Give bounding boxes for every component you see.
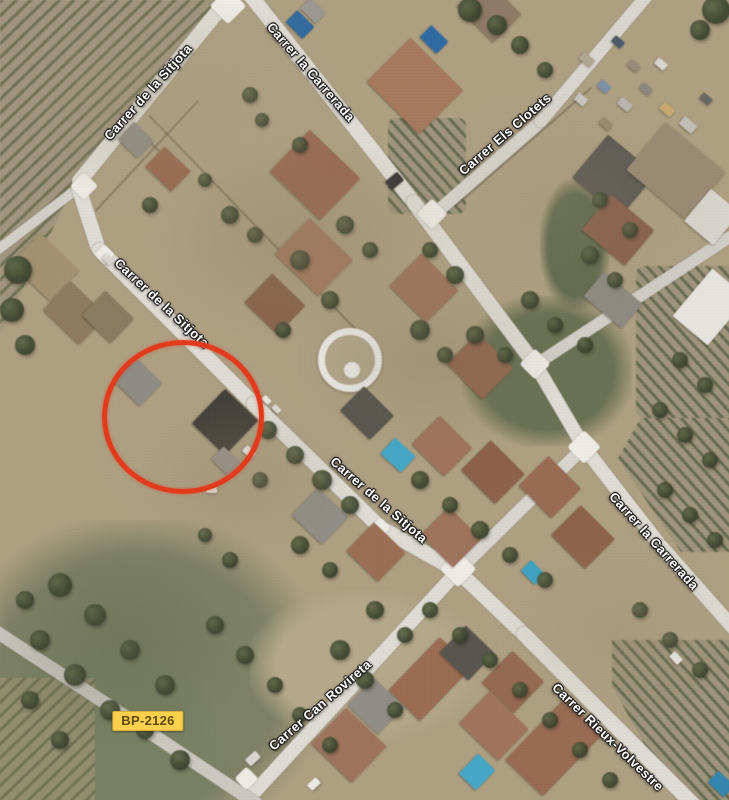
tree-canopy [702,452,718,468]
route-badge: BP-2126 [112,711,183,731]
tree-canopy [537,572,553,588]
tree-canopy [547,317,563,333]
building [627,59,641,73]
tree-canopy [206,616,224,634]
tree-canopy [672,352,688,368]
tree-canopy [275,322,291,338]
tree-canopy [290,250,310,270]
building [551,505,615,569]
tree-canopy [512,682,528,698]
tree-canopy [222,552,238,568]
building [597,79,612,94]
tree-canopy [592,192,608,208]
building [574,92,589,107]
building [617,97,634,113]
tree-canopy [16,591,34,609]
tree-canopy [677,427,693,443]
tree-canopy [142,197,158,213]
tree-canopy [697,377,713,393]
tree-canopy [362,242,378,258]
building [420,25,449,54]
tree-canopy [497,347,513,363]
tree-canopy [170,750,190,770]
tree-canopy [502,547,518,563]
tree-canopy [48,573,72,597]
tree-canopy [572,742,588,758]
tree-canopy [366,601,384,619]
tree-canopy [4,256,32,284]
water-tank-roof [344,362,360,378]
satellite-map[interactable]: Carrer de la SitjotaCarrer la CarreradaC… [0,0,729,800]
building [389,253,458,322]
tree-canopy [657,482,673,498]
tree-canopy [411,471,429,489]
route-badge-text: BP-2126 [121,713,174,728]
tree-canopy [30,630,50,650]
tree-canopy [442,497,458,513]
tree-canopy [581,246,599,264]
building [380,437,416,472]
tree-canopy [286,446,304,464]
tree-canopy [682,507,698,523]
tree-canopy [487,15,507,35]
tree-canopy [422,242,438,258]
tree-canopy [652,402,668,418]
building [659,102,676,118]
building [654,57,668,71]
tree-canopy [336,216,354,234]
tree-canopy [292,137,308,153]
building [679,116,698,134]
tree-canopy [410,320,430,340]
tree-canopy [452,627,468,643]
tree-canopy [577,337,593,353]
tree-canopy [622,222,638,238]
tree-canopy [21,691,39,709]
tree-canopy [322,737,338,753]
tree-canopy [466,326,484,344]
tree-canopy [236,646,254,664]
tree-canopy [84,604,106,626]
tree-canopy [341,496,359,514]
tree-canopy [51,731,69,749]
tree-canopy [322,562,338,578]
tree-canopy [422,602,438,618]
tree-canopy [252,472,268,488]
tree-canopy [521,291,539,309]
tree-canopy [387,702,403,718]
tree-canopy [321,291,339,309]
tree-canopy [291,536,309,554]
tree-canopy [632,602,648,618]
tree-canopy [312,470,332,490]
building [599,117,613,131]
building [639,82,653,96]
tree-canopy [221,206,239,224]
tree-canopy [15,335,35,355]
tree-canopy [0,298,24,322]
building [459,754,496,791]
vineyard-field [0,678,95,800]
tree-canopy [356,671,374,689]
tree-canopy [437,347,453,363]
tree-canopy [707,532,723,548]
tree-canopy [690,20,710,40]
tree-canopy [511,36,529,54]
tree-canopy [155,675,175,695]
tree-canopy [64,664,86,686]
tree-canopy [198,528,212,542]
building [699,92,713,106]
water-tank [318,328,382,392]
highlight-circle-marker [102,340,264,494]
road-segment [652,537,729,641]
building [340,386,394,440]
tree-canopy [292,707,308,723]
tree-canopy [242,87,258,103]
tree-canopy [702,0,729,24]
tree-canopy [247,227,263,243]
tree-canopy [542,712,558,728]
tree-canopy [537,62,553,78]
tree-canopy [607,272,623,288]
building [611,35,625,49]
tree-canopy [662,632,678,648]
tree-canopy [397,627,413,643]
tree-canopy [330,640,350,660]
tree-canopy [198,173,212,187]
tree-canopy [482,652,498,668]
tree-canopy [255,113,269,127]
tree-canopy [446,266,464,284]
tree-canopy [471,521,489,539]
tree-canopy [267,677,283,693]
tree-canopy [602,772,618,788]
tree-canopy [120,640,140,660]
tree-canopy [692,662,708,678]
building [270,130,361,220]
